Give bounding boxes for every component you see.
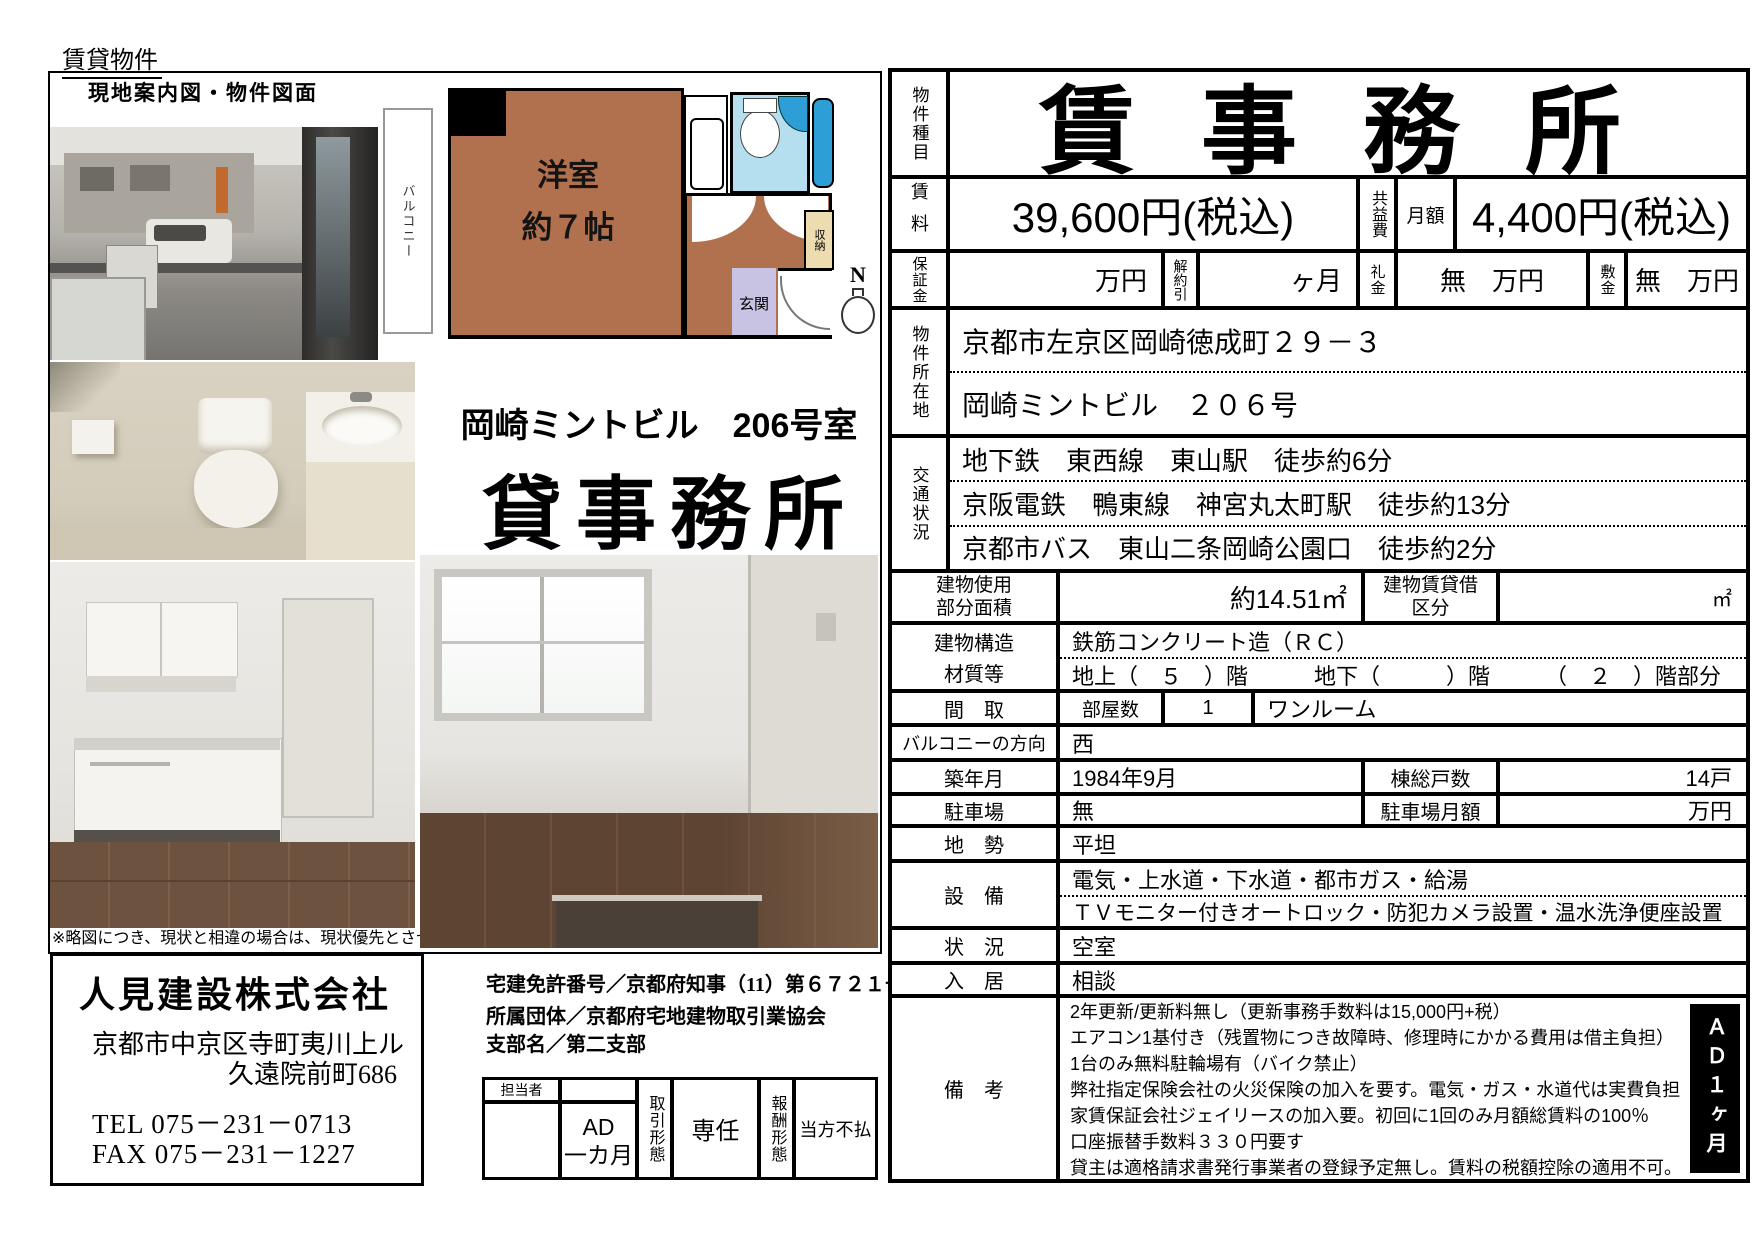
parking-label-cell: 駐車場	[892, 796, 1056, 824]
location-line: 岡崎ミントビル ２０６号	[950, 371, 1746, 434]
kubun-label-line2: 区分	[1411, 597, 1449, 620]
equip-line: 電気・上水道・下水道・都市ガス・給湯	[1060, 863, 1746, 895]
reward-value-cell: 当方不払	[796, 1080, 875, 1177]
photo-vent	[816, 613, 836, 641]
built-value-cell: 1984年9月	[1060, 762, 1361, 792]
building-room-title: 岡崎ミントビル 206号室	[440, 398, 878, 447]
staff-table: 担当者 AD 一カ月 取引形態 専任 報酬形態 当方不払	[482, 1077, 878, 1180]
equip-line: ＴＶモニター付きオートロック・防犯カメラ設置・温水洗浄便座設置	[1060, 895, 1746, 926]
remarks-label-cell: 備 考	[892, 998, 1056, 1179]
transit-line: 地下鉄 東西線 東山駅 徒歩約6分	[950, 438, 1746, 480]
shikikin-value-cell: 無 万円	[1628, 253, 1746, 306]
balcony-strip: バルコニー	[383, 108, 433, 334]
reward-label-cell: 報酬形態	[761, 1080, 792, 1177]
deal-type-value-cell: 専任	[674, 1080, 757, 1177]
equip-value-cell: 電気・上水道・下水道・都市ガス・給湯 ＴＶモニター付きオートロック・防犯カメラ設…	[1060, 863, 1746, 926]
photo-room-interior	[420, 555, 878, 948]
photo-bathroom	[50, 362, 415, 560]
license-branch: 支部名／第二支部	[486, 1028, 646, 1057]
shikikin-label-cell: 敷金	[1590, 253, 1624, 306]
remarks-line: 貸主は適格請求書発行事業者の登録予定無し。賃料の税額控除の適用不可。	[1060, 1154, 1746, 1179]
balcony-label: バルコニー	[399, 184, 418, 259]
kubun-value-cell: ㎡	[1500, 573, 1746, 621]
area-label-line2: 部分面積	[936, 597, 1012, 620]
structure-label-line1: 建物構造	[934, 627, 1014, 656]
ad-cell: AD 一カ月	[562, 1104, 635, 1177]
remarks-line: 1台のみ無料駐輪場有（バイク禁止）	[1060, 1050, 1746, 1076]
status-label-cell: 状 況	[892, 930, 1056, 961]
photo-sink-cabinet	[306, 462, 415, 560]
kyoueki-value-cell: 4,400円(税込)	[1457, 179, 1746, 249]
reikin-label-cell: 礼金	[1360, 253, 1394, 306]
note-strip: ※略図につき、現状と相違の場合は、現状優先とさせて頂きま	[52, 928, 444, 949]
madori-value-cell: ワンルーム	[1255, 693, 1746, 723]
photo-upper-cabinet	[86, 602, 238, 678]
location-value-cell: 京都市左京区岡崎徳成町２９－３ 岡崎ミントビル ２０６号	[950, 310, 1746, 434]
structure-label-cell: 建物構造 材質等	[892, 625, 1056, 689]
photo-sign	[216, 167, 228, 213]
deal-type-label-cell: 取引形態	[639, 1080, 670, 1177]
parking-value-cell: 無	[1060, 796, 1361, 824]
photo-building-window	[80, 167, 114, 191]
units-value-cell: 14戸	[1500, 762, 1746, 792]
area-value-cell: 約14.51㎡	[1060, 573, 1361, 621]
type-value-cell: 賃事務所	[950, 72, 1746, 175]
kubun-label-cell: 建物賃貸借 区分	[1365, 573, 1496, 621]
spec-table: 物件種目 賃事務所 賃料 39,600円(税込) 共益費 月額 4,400円(税…	[888, 68, 1750, 1183]
manager-label-cell: 担当者	[485, 1080, 558, 1100]
reikin-value-cell: 無 万円	[1398, 253, 1586, 306]
area-label-cell: 建物使用 部分面積	[892, 573, 1056, 621]
structure-label-line2: 材質等	[944, 658, 1004, 687]
north-compass-icon: N	[836, 262, 880, 342]
photo-building-window	[130, 165, 170, 191]
manager-value-cell	[485, 1104, 558, 1177]
room-label-line2: 約７帖	[478, 202, 658, 254]
structure-line: 鉄筋コンクリート造（ＲＣ）	[1060, 625, 1746, 657]
reikin-label: 礼金	[1367, 264, 1388, 296]
monthly-label-cell: 月額	[1398, 179, 1453, 249]
photo-cabinet-divider	[160, 602, 162, 676]
photo-frosted-pane	[50, 277, 146, 360]
photo-wall-edge	[748, 555, 751, 813]
kaiyaku-label: 解約引	[1171, 259, 1191, 301]
transit-label: 交通状況	[907, 466, 932, 542]
remarks-line: 家賃保証会社ジェイリースの加入要。初回に1回のみ月額総賃料の100％	[1060, 1102, 1746, 1128]
agency-fax: FAX 075－231－1227	[92, 1132, 356, 1171]
deal-type-label: 取引形態	[643, 1095, 667, 1163]
property-flyer: 賃貸物件 現地案内図・物件図面 バルコニー 洋室 約７帖	[0, 0, 1755, 1241]
remarks-line: 口座振替手数料３３０円要す	[1060, 1128, 1746, 1154]
photo-van-window	[154, 225, 206, 241]
remarks-line: 2年更新/更新料無し（更新事務手数料は15,000円+税）	[1060, 998, 1746, 1024]
remarks-line: エアコン1基付き（残置物につき故障時、修理時にかかる費用は借主負担）	[1060, 1024, 1746, 1050]
photo-genkan-mat	[556, 901, 758, 948]
deposit-label-cell: 保証金	[892, 253, 946, 306]
remarks-value-cell: 2年更新/更新料無し（更新事務手数料は15,000円+税） エアコン1基付き（残…	[1060, 998, 1746, 1179]
toilet	[740, 110, 780, 158]
kaiyaku-label-cell: 解約引	[1165, 253, 1196, 306]
units-label-cell: 棟総戸数	[1365, 762, 1496, 792]
photo-floor-plank-line	[50, 880, 415, 882]
shikikin-label: 敷金	[1597, 264, 1618, 296]
kubun-label-line1: 建物賃貸借	[1383, 574, 1478, 597]
built-label-cell: 築年月	[892, 762, 1056, 792]
type-label-cell: 物件種目	[892, 72, 946, 175]
rooms-value-cell: 1	[1165, 693, 1251, 723]
north-letter: N	[836, 262, 880, 288]
rent-value-cell: 39,600円(税込)	[950, 179, 1356, 249]
kaiyaku-value-cell: ヶ月	[1200, 253, 1356, 306]
kitchen-sink	[690, 118, 724, 190]
agency-address2: 久遠院前町686	[228, 1054, 397, 1091]
photo-unit-handle	[90, 762, 170, 766]
agency-name: 人見建設株式会社	[60, 966, 410, 1018]
structure-value-cell: 鉄筋コンクリート造（ＲＣ） 地上（ ５ ）階 地下（ ）階 （ ２ ）階部分	[1060, 625, 1746, 689]
land-label-cell: 地 勢	[892, 828, 1056, 859]
room-label-line1: 洋室	[478, 150, 658, 202]
status-value-cell: 空室	[1060, 930, 1746, 961]
nyukyo-value-cell: 相談	[1060, 965, 1746, 994]
photo-window-mullion-h	[442, 641, 644, 644]
photo-balcony-view	[50, 127, 378, 360]
balcony-dir-label-cell: バルコニーの方向	[892, 727, 1056, 758]
parking-fee-value-cell: 万円	[1500, 796, 1746, 824]
bathtub	[812, 98, 834, 188]
land-value-cell: 平坦	[1060, 828, 1746, 859]
photo-counter-top	[74, 738, 280, 750]
rent-label-cell: 賃料	[892, 179, 946, 249]
plan-bottom-wall	[448, 335, 832, 339]
entrance-box: 玄関	[732, 268, 776, 338]
rooms-label-cell: 部屋数	[1060, 693, 1161, 723]
transit-label-cell: 交通状況	[892, 438, 946, 569]
transit-line: 京阪電鉄 鴨東線 神宮丸太町駅 徒歩約13分	[950, 480, 1746, 524]
compass-notch	[852, 288, 864, 296]
photo-sink-basin	[322, 406, 402, 446]
madori-label-cell: 間 取	[892, 693, 1056, 723]
room-label: 洋室 約７帖	[478, 150, 658, 254]
location-line: 京都市左京区岡崎徳成町２９－３	[950, 310, 1746, 371]
kyoueki-label-cell: 共益費	[1360, 179, 1394, 249]
deposit-label: 保証金	[909, 256, 930, 304]
license-number: 宅建免許番号／京都府知事（11）第６７２１号	[486, 968, 905, 997]
ad-line2: 一カ月	[564, 1141, 633, 1169]
closet-box: 収納	[804, 210, 834, 270]
remarks-line: 弊社指定保険会社の火災保険の加入を要す。電気・ガス・水道代は実費負担	[1060, 1076, 1746, 1102]
location-label: 物件所在地	[907, 325, 932, 420]
left-panel-title: 現地案内図・物件図面	[88, 77, 318, 107]
parking-fee-label-cell: 駐車場月額	[1365, 796, 1496, 824]
photo-toilet-tank	[198, 398, 272, 454]
closet-label: 収納	[811, 229, 827, 251]
photo-toe-kick	[74, 830, 280, 842]
transit-line: 京都市バス 東山二条岡崎公園口 徒歩約2分	[950, 525, 1746, 569]
reward-label: 報酬形態	[765, 1095, 789, 1163]
photo-window-mullion-v	[540, 577, 544, 713]
photo-kitchen-floor	[50, 842, 415, 928]
photo-range-hood	[86, 676, 236, 692]
floor-plan: バルコニー 洋室 約７帖 収納 玄関	[380, 80, 832, 342]
photo-side-wall	[750, 555, 878, 813]
photo-door	[282, 598, 374, 818]
photo-kitchen	[50, 562, 415, 928]
manager-top-empty-cell	[562, 1080, 635, 1100]
area-label-line1: 建物使用	[936, 574, 1012, 597]
location-label-cell: 物件所在地	[892, 310, 946, 434]
nyukyo-label-cell: 入 居	[892, 965, 1056, 994]
balcony-dir-value-cell: 西	[1060, 727, 1746, 758]
structure-line: 地上（ ５ ）階 地下（ ）階 （ ２ ）階部分	[1060, 657, 1746, 689]
photo-kitchen-unit	[74, 738, 282, 844]
ad-term-text: ＡＤ１ヶ月	[1700, 1016, 1730, 1161]
equip-label-cell: 設 備	[892, 863, 1056, 926]
transit-value-cell: 地下鉄 東西線 東山駅 徒歩約6分 京阪電鉄 鴨東線 神宮丸太町駅 徒歩約13分…	[950, 438, 1746, 569]
photo-bath-floor	[50, 528, 306, 560]
photo-bath-shadow	[50, 362, 120, 412]
ad-line1: AD	[583, 1113, 615, 1141]
photo-toilet-bowl	[194, 450, 278, 528]
deposit-value-cell: 万円	[950, 253, 1161, 306]
photo-wall-lamp	[72, 420, 114, 454]
license-org: 所属団体／京都府宅地建物取引業協会	[486, 1000, 826, 1029]
photo-door-glass	[316, 137, 350, 337]
ad-term-badge: ＡＤ１ヶ月	[1690, 1004, 1740, 1173]
wall-corner-block	[450, 90, 506, 136]
kyoueki-label: 共益費	[1365, 190, 1389, 238]
rent-label: 賃料	[906, 182, 932, 246]
toilet-tank	[743, 98, 777, 113]
entrance-label: 玄関	[739, 293, 769, 314]
type-label: 物件種目	[907, 86, 932, 162]
property-type-big: 貸事務所	[470, 450, 870, 566]
photo-sink-faucet	[350, 392, 372, 402]
compass-circle	[841, 296, 875, 334]
